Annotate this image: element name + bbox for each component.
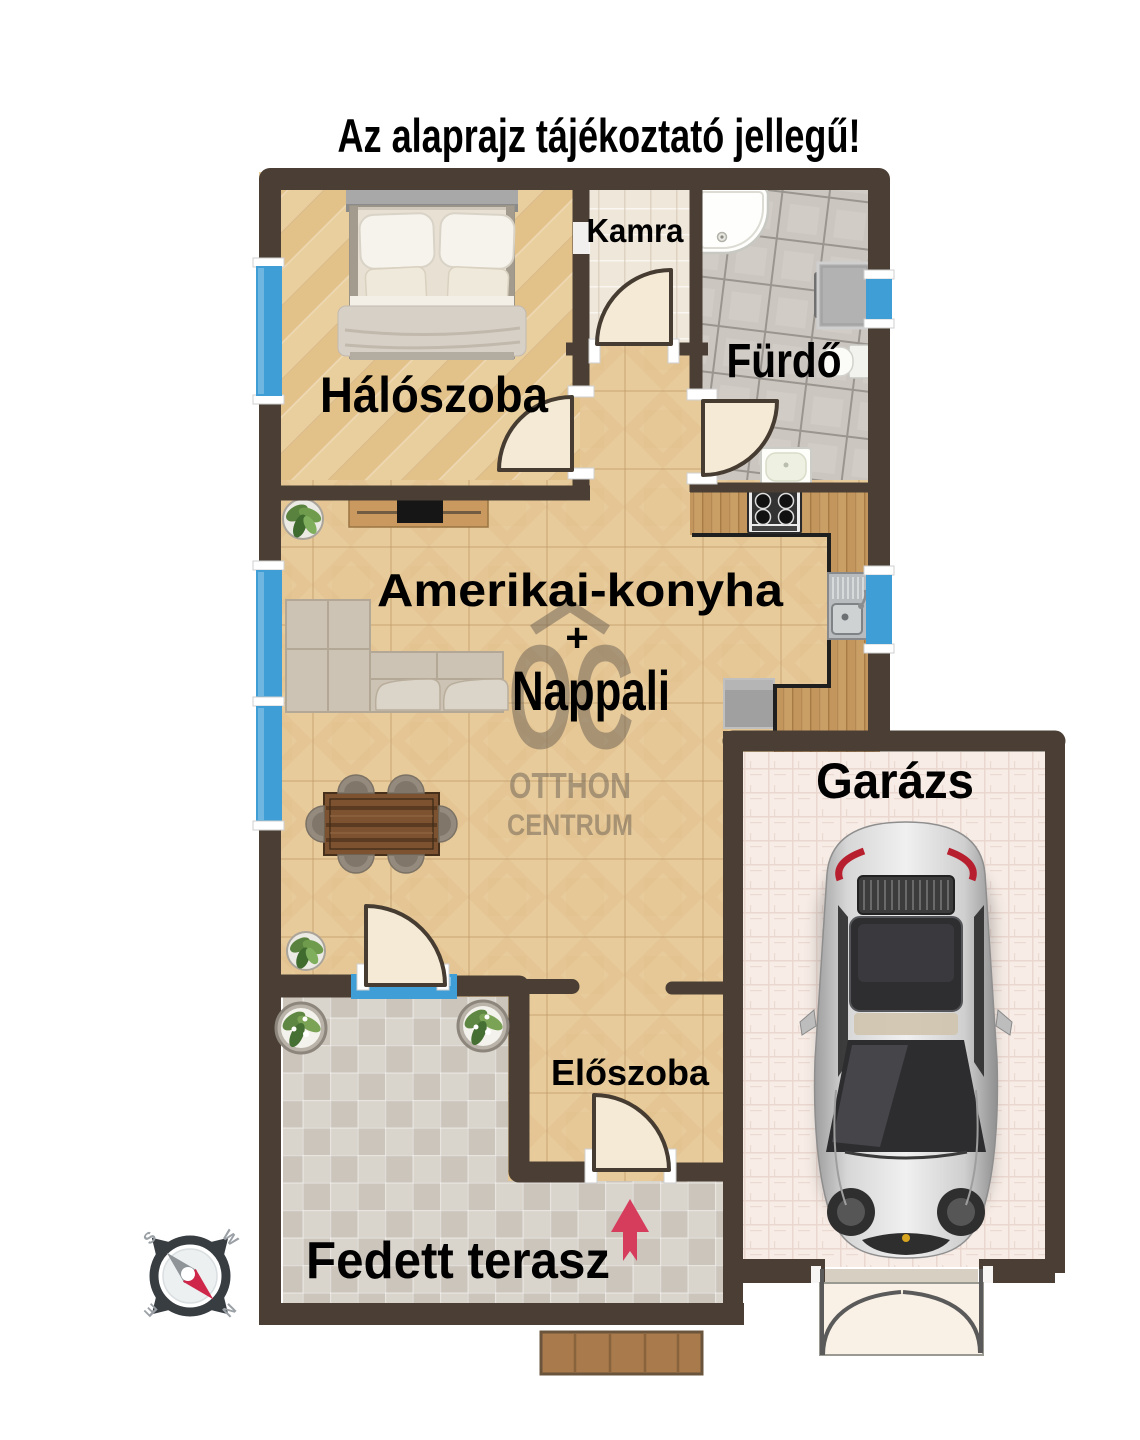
svg-text:CENTRUM: CENTRUM [507, 809, 633, 842]
svg-text:Amerikai-konyha: Amerikai-konyha [377, 564, 783, 616]
svg-text:Kamra: Kamra [587, 212, 685, 249]
svg-text:Előszoba: Előszoba [551, 1052, 710, 1093]
svg-text:Garázs: Garázs [816, 753, 974, 809]
svg-text:Fürdő: Fürdő [727, 335, 842, 388]
svg-text:Fedett terasz: Fedett terasz [306, 1232, 610, 1290]
svg-text:+: + [565, 616, 588, 660]
svg-text:Hálószoba: Hálószoba [320, 367, 549, 423]
svg-text:Nappali: Nappali [512, 659, 670, 722]
svg-text:OTTHON: OTTHON [509, 765, 631, 806]
svg-text:Az alaprajz tájékoztató jelleg: Az alaprajz tájékoztató jellegű! [338, 109, 861, 162]
